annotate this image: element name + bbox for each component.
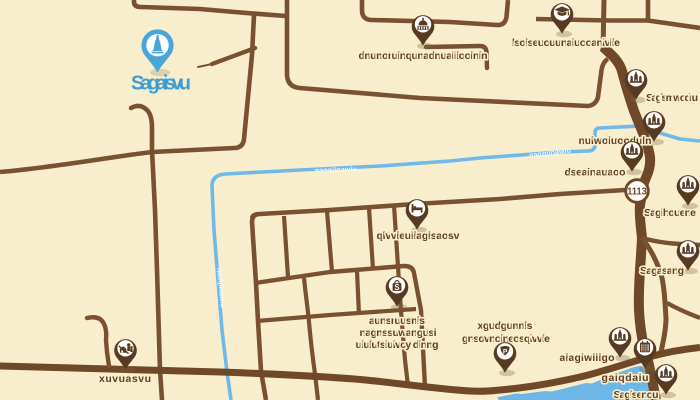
svg-text:Sagihouene: Sagihouene <box>644 207 696 219</box>
svg-text:Sagaisvu: Sagaisvu <box>131 73 191 95</box>
svg-text:S: S <box>394 283 399 292</box>
svg-text:xgudgunnis: xgudgunnis <box>478 320 533 332</box>
svg-text:naoqiinawiu: naoqiinawiu <box>315 166 357 174</box>
svg-text:nagnssuwangusi: nagnssuwangusi <box>360 327 437 339</box>
svg-text:aiagiwiiigo: aiagiwiiigo <box>560 352 615 364</box>
svg-text:1113: 1113 <box>627 187 647 198</box>
svg-text:uiulutsiulvcy dinng: uiulutsiulvcy dinng <box>356 339 439 351</box>
svg-text:P: P <box>503 348 508 355</box>
svg-text:lsoiseuouunaiuooanlviie: lsoiseuouunaiuooanlviie <box>512 37 620 49</box>
svg-text:dseainauaoo: dseainauaoo <box>565 167 626 179</box>
svg-text:Sagisenou: Sagisenou <box>614 389 659 400</box>
svg-text:aunsruusnis: aunsruusnis <box>369 315 425 327</box>
svg-text:qlvvieuiiagisaosv: qlvvieuiiagisaosv <box>377 230 460 242</box>
svg-text:xuvuasvu: xuvuasvu <box>99 373 151 385</box>
svg-text:gaiqdaiu: gaiqdaiu <box>602 372 649 384</box>
svg-text:Sagismwodru: Sagismwodru <box>646 92 698 104</box>
svg-text:Sagasang: Sagasang <box>640 265 684 277</box>
svg-text:dnunoruinqunadnuaiiiooinin: dnunoruinqunadnuaiiiooinin <box>359 50 488 62</box>
